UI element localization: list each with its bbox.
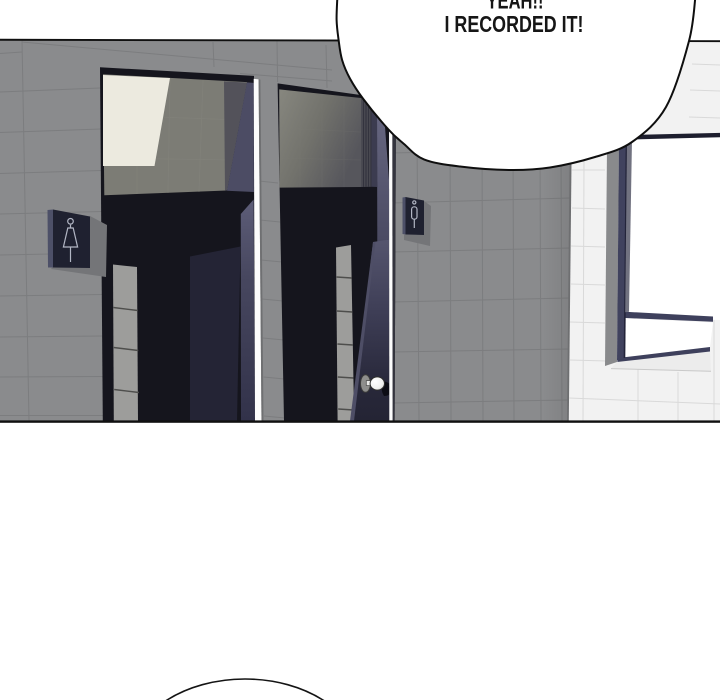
svg-text:I RECORDED IT!: I RECORDED IT! [445,11,584,37]
